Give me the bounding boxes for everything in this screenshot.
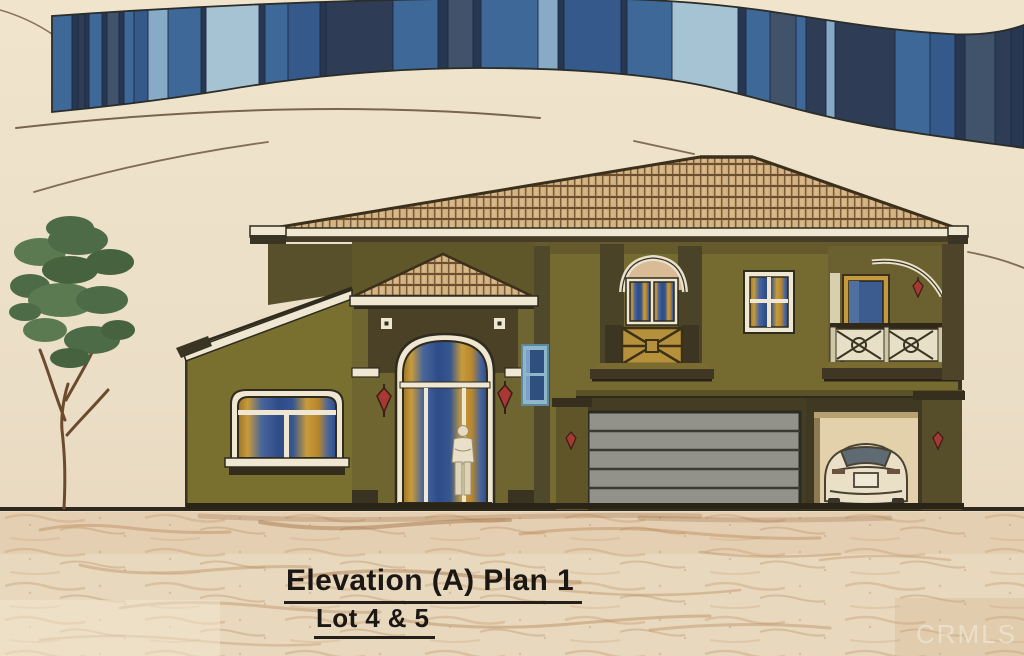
lot-label: Lot 4 & 5 xyxy=(314,603,435,639)
entry-tower xyxy=(350,254,538,508)
garage-level xyxy=(552,390,965,510)
crmls-watermark: CRMLS xyxy=(916,619,1017,650)
garage-pilaster-center xyxy=(552,398,592,510)
garage-door-left xyxy=(578,398,807,510)
balcony-center xyxy=(590,244,714,382)
balcony-shutter-right xyxy=(682,325,699,364)
house-base-shadow xyxy=(186,503,964,509)
balcony-shutter-left xyxy=(605,325,622,364)
blue-side-window xyxy=(522,345,548,405)
right-corner-pilaster xyxy=(942,244,964,380)
elevation-title: Elevation (A) Plan 1 xyxy=(284,564,582,604)
wood-railing xyxy=(622,328,682,364)
left-window xyxy=(225,390,349,475)
garage-open-right xyxy=(806,398,926,510)
upper-window-small xyxy=(744,271,794,333)
car-illustration xyxy=(825,444,907,506)
elevation-drawing xyxy=(0,0,1024,656)
architectural-rendering: Elevation (A) Plan 1 Lot 4 & 5 CRMLS xyxy=(0,0,1024,656)
balcony-right xyxy=(822,244,964,382)
entry-door xyxy=(396,334,494,508)
metal-railing xyxy=(830,323,944,363)
